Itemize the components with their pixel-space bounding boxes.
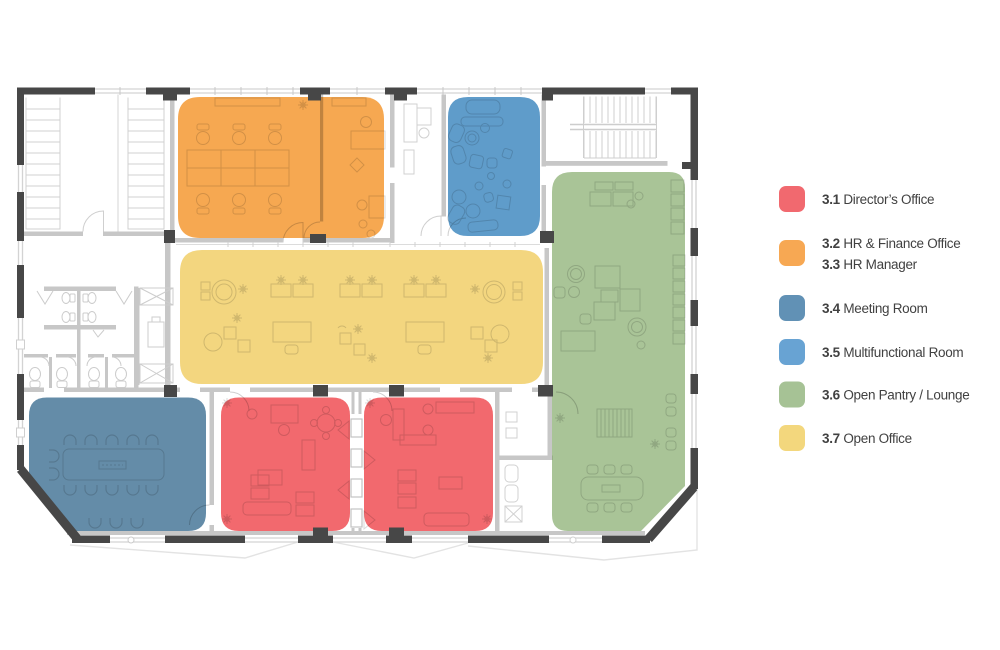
svg-text:3.6 Open Pantry / Lounge: 3.6 Open Pantry / Lounge	[822, 388, 969, 403]
svg-text:3.7 Open Office: 3.7 Open Office	[822, 431, 912, 446]
svg-text:3.5 Multifunctional Room: 3.5 Multifunctional Room	[822, 345, 963, 360]
svg-text:3.2 HR & Finance Office: 3.2 HR & Finance Office	[822, 236, 960, 251]
svg-text:3.3 HR Manager: 3.3 HR Manager	[822, 257, 918, 272]
svg-text:3.4 Meeting Room: 3.4 Meeting Room	[822, 301, 928, 316]
svg-text:3.1 Director’s Office: 3.1 Director’s Office	[822, 192, 934, 207]
